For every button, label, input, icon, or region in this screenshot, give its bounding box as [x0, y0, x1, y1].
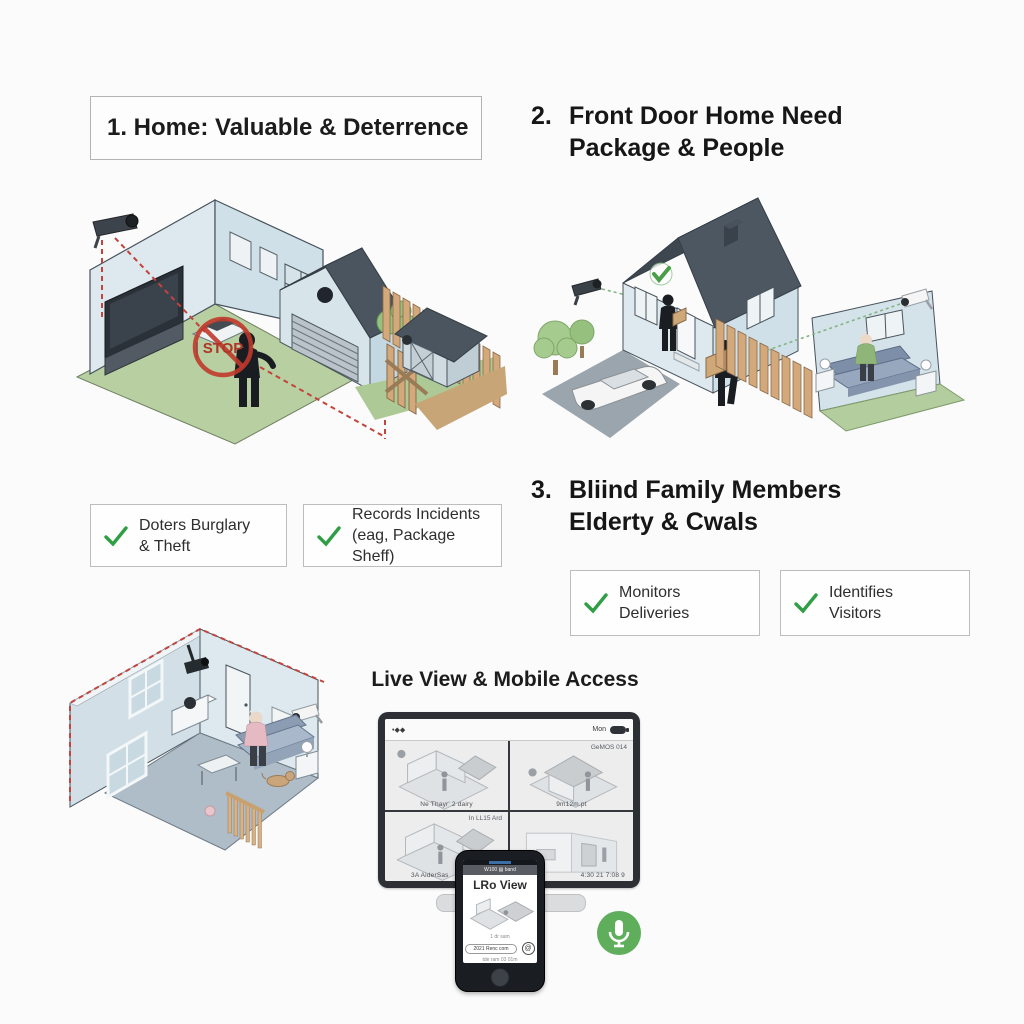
phone-toolbar: W100 ▤ band	[463, 865, 537, 875]
infographic-canvas: 1. Home: Valuable & Deterrence	[0, 0, 1024, 1024]
check-icon	[793, 592, 819, 614]
security-camera-icon	[572, 279, 602, 305]
section2-line1: Front Door Home Need	[569, 102, 843, 130]
section2-line2: Package & People	[569, 134, 784, 162]
tree	[534, 320, 594, 375]
camera-feed-2: GeMOS 014 9m12m.pt	[510, 741, 633, 810]
section3-number: 3.	[531, 474, 569, 538]
section2-number: 2.	[531, 100, 569, 164]
feed-overlay: In LL15 Ard	[469, 815, 502, 822]
scene3-illustration	[50, 615, 380, 915]
phone-caption: tde ram 03 01m	[482, 957, 517, 963]
check-card-deters: Doters Burglary & Theft	[90, 504, 287, 567]
check-label: Records Incidents	[352, 506, 480, 523]
section3-line1: Bliind Family Members	[569, 476, 841, 504]
menubar-icons: •◆◆	[392, 726, 405, 734]
section3-line2: Elderty & Cwals	[569, 508, 758, 536]
smartphone: W100 ▤ band LRo View 1 dr sam 2021 Renc …	[455, 850, 545, 992]
phone-action-button: 2021 Renc com	[465, 944, 516, 954]
feed-caption: 9m12m.pt	[510, 801, 633, 808]
menubar-day-label: Mon	[592, 726, 606, 733]
shed-camera-icon	[402, 335, 412, 345]
phone-screen: W100 ▤ band LRo View 1 dr sam 2021 Renc …	[463, 860, 537, 963]
check-label: Deliveries	[619, 605, 689, 622]
check-card-identifies: Identifies Visitors	[780, 570, 970, 636]
check-label: (eag, Package Sheff)	[352, 527, 455, 565]
check-icon	[316, 525, 342, 547]
camera-feed-1: Ne Thayr' 2 dairy	[385, 741, 508, 810]
scene2-illustration	[528, 188, 978, 473]
check-label: & Theft	[139, 538, 190, 555]
check-label: Monitors	[619, 584, 680, 601]
check-label: Identifies	[829, 584, 893, 601]
monitor-menubar: •◆◆ Mon	[385, 719, 633, 741]
phone-caption: 1 dr sam	[490, 934, 509, 940]
check-label: Doters Burglary	[139, 517, 250, 534]
section2-title: 2. Front Door Home Need Package & People	[531, 100, 951, 164]
section1-title-box: 1. Home: Valuable & Deterrence	[90, 96, 482, 160]
check-label: Visitors	[829, 605, 881, 622]
check-icon	[583, 592, 609, 614]
feed-thumbnail	[385, 741, 508, 810]
garage-camera-icon	[317, 287, 333, 303]
doorbell-check-icon	[650, 263, 672, 285]
section3-title: 3. Bliind Family Members Elderty & Cwals	[531, 474, 961, 538]
section1-title: 1. Home: Valuable & Deterrence	[107, 114, 468, 142]
home-button	[491, 968, 510, 987]
feed-thumbnail	[510, 741, 633, 810]
scene1-illustration: STOP	[55, 192, 515, 457]
battery-icon	[610, 726, 626, 734]
feed-overlay: GeMOS 014	[591, 744, 627, 751]
check-card-records: Records Incidents (eag, Package Sheff)	[303, 504, 502, 567]
mic-button	[596, 910, 642, 956]
security-camera-icon	[93, 214, 138, 248]
check-icon	[103, 525, 129, 547]
stop-label: STOP	[203, 340, 244, 357]
liveview-title: Live View & Mobile Access	[355, 668, 655, 692]
feed-caption: Ne Thayr' 2 dairy	[385, 801, 508, 808]
microphone-icon	[596, 910, 642, 956]
check-card-monitors: Monitors Deliveries	[570, 570, 760, 636]
phone-app-title: LRo View	[473, 878, 527, 892]
at-icon: @	[522, 942, 535, 955]
phone-live-thumbnail	[464, 893, 536, 932]
